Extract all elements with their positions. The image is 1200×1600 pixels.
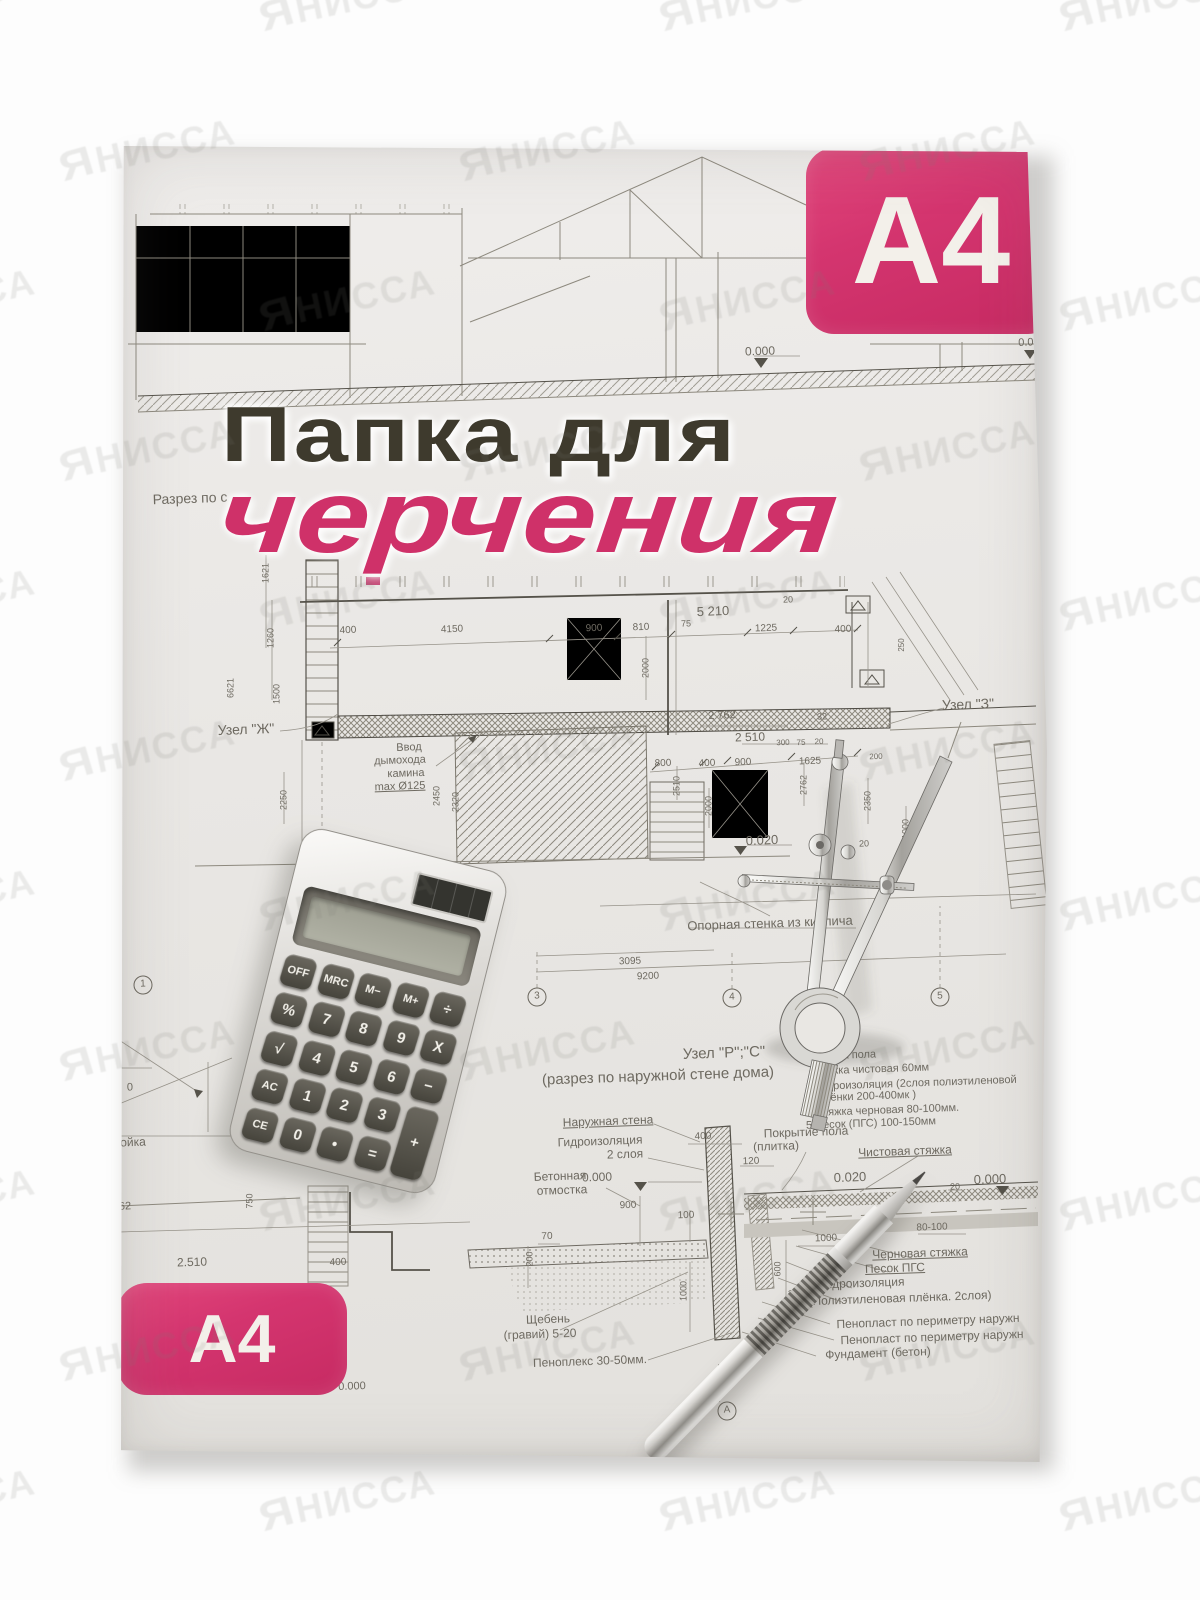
watermark-tile: ЯНИССА: [0, 857, 40, 940]
blueprint-label: Плитка пола: [812, 1049, 876, 1062]
nissa-logo-icon: Я: [53, 1336, 101, 1391]
nissa-logo-icon: Я: [253, 0, 301, 41]
calculator-key: •: [315, 1124, 355, 1163]
blueprint-label: 250: [898, 638, 906, 651]
nissa-logo-icon: Я: [1053, 286, 1101, 341]
calculator-key: 3: [362, 1095, 402, 1134]
blueprint-label: 750: [246, 1193, 255, 1208]
blueprint-labels: Разрез по с0.0000.01240041509008105 2107…: [121, 146, 1047, 1462]
blueprint-label: 9200: [637, 972, 660, 983]
watermark-text: НИССА: [1092, 1461, 1200, 1531]
blueprint-label: (Полиэтиленовая плёнка. 2слоя): [808, 1289, 991, 1307]
blueprint-label: 1225: [755, 624, 778, 635]
nissa-logo-icon: Я: [53, 136, 101, 191]
blueprint-label: 120: [742, 1157, 759, 1168]
nissa-logo-icon: Я: [1053, 1186, 1101, 1241]
nissa-logo-icon: Я: [53, 436, 101, 491]
blueprint-label: Покрытие пола: [763, 1125, 848, 1140]
calculator-key: −: [409, 1067, 449, 1106]
watermark-tile: ЯНИССА: [257, 0, 440, 40]
blueprint-label: max Ø125: [374, 781, 425, 794]
blueprint-label: Узел "Р";"С": [683, 1044, 766, 1062]
blueprint-label: Стяжка чистовая 60мм: [812, 1062, 929, 1077]
calculator-key: CE: [240, 1106, 280, 1145]
calculator-key: 8: [343, 1010, 383, 1049]
blueprint-label: Опорная стенка из кирпича: [687, 914, 853, 933]
watermark-text: НИССА: [1092, 0, 1200, 31]
blueprint-label: 600: [774, 1261, 783, 1276]
nissa-logo-icon: Я: [1053, 886, 1101, 941]
blueprint-label: 2.510: [177, 1255, 207, 1268]
watermark-tile: ЯНИССА: [1057, 557, 1200, 640]
blueprint-label: 80-100: [916, 1222, 947, 1233]
format-badge-bottom-label: А4: [189, 1300, 276, 1378]
blueprint-label: (гравий) 5-20: [503, 1327, 576, 1342]
watermark-tile: ЯНИССА: [1057, 0, 1200, 40]
blueprint-label: Песок ПГС: [865, 1261, 925, 1275]
blueprint-label: 0.000: [338, 1381, 366, 1393]
blueprint-label: (разрез по наружной стене дома): [542, 1064, 775, 1087]
nissa-logo-icon: Я: [653, 0, 701, 41]
watermark-text: НИССА: [1092, 1161, 1200, 1231]
blueprint-label: 20: [950, 1182, 960, 1191]
blueprint-label: 2 слоя: [607, 1147, 644, 1160]
blueprint-label: 1625: [799, 757, 822, 768]
watermark-tile: ЯНИССА: [1057, 857, 1200, 940]
blueprint-label: Щебень: [526, 1312, 570, 1326]
blueprint-label: 800: [654, 759, 671, 770]
watermark-tile: ЯНИССА: [0, 257, 40, 340]
blueprint-label: плёнки 200-400мк ): [818, 1090, 916, 1104]
blueprint-label: ойка: [120, 1136, 146, 1149]
blueprint-label: 75: [796, 739, 805, 747]
print-fleck: [366, 577, 380, 585]
blueprint-label: 2450: [433, 786, 442, 806]
calculator-key: 4: [296, 1039, 336, 1078]
blueprint-label: 0.020: [746, 833, 779, 847]
watermark-text: НИССА: [0, 0, 40, 31]
calculator-key: =: [352, 1134, 392, 1173]
blueprint-label: 400: [698, 759, 715, 770]
blueprint-label: 32: [817, 712, 827, 721]
blueprint-label: 400: [329, 1258, 346, 1269]
blueprint-label: 20: [859, 839, 869, 848]
blueprint-label: 75: [681, 619, 691, 628]
blueprint-label: Ввод: [396, 742, 422, 754]
blueprint-label: 70: [541, 1232, 552, 1242]
blueprint-label: 400: [834, 625, 851, 636]
blueprint-label: 20: [783, 595, 793, 604]
watermark-tile: ЯНИССА: [0, 1457, 40, 1540]
calculator-key: M+: [390, 981, 430, 1020]
blueprint-label: 5 210: [697, 604, 730, 618]
blueprint-label: Разрез по с: [152, 490, 227, 507]
blueprint-label: Узел "Ж": [217, 721, 274, 737]
calculator-key: 5: [334, 1048, 374, 1087]
blueprint-label: 1000: [902, 819, 911, 839]
calculator-key: 7: [306, 1000, 346, 1039]
watermark-text: НИССА: [0, 261, 40, 331]
blueprint-label: отмостка: [537, 1183, 588, 1197]
nissa-logo-icon: Я: [53, 736, 101, 791]
watermark-text: НИССА: [1092, 861, 1200, 931]
format-badge-bottom: А4: [117, 1283, 347, 1395]
blueprint-label: 4150: [441, 625, 464, 636]
nissa-logo-icon: Я: [1053, 586, 1101, 641]
blueprint-label: (плитка): [753, 1139, 799, 1153]
blueprint-label: 2762: [800, 775, 809, 795]
watermark-text: НИССА: [692, 0, 840, 31]
blueprint-label: 0.000: [974, 1172, 1007, 1186]
watermark-text: НИССА: [1092, 561, 1200, 631]
nissa-logo-icon: Я: [253, 1486, 301, 1541]
calculator-key: 6: [371, 1057, 411, 1096]
watermark-tile: ЯНИССА: [0, 557, 40, 640]
blueprint-label: камина: [387, 768, 424, 780]
watermark-text: НИССА: [292, 0, 440, 31]
blueprint-label: 2510: [673, 776, 682, 796]
blueprint-label: 1: [133, 975, 153, 995]
blueprint-label: 2350: [864, 791, 873, 811]
blueprint-label: Узел "З": [942, 696, 995, 712]
calculator-key: %: [269, 991, 309, 1030]
watermark-tile: ЯНИССА: [1057, 257, 1200, 340]
calculator-key: OFF: [278, 953, 318, 992]
blueprint-label: А: [717, 1401, 737, 1421]
blueprint-label: 1000: [680, 1281, 689, 1301]
blueprint-label: 4: [722, 988, 742, 1008]
blueprint-label: 2 510: [735, 730, 765, 743]
watermark-tile: ЯНИССА: [0, 1157, 40, 1240]
blueprint-label: 1260: [267, 628, 276, 648]
watermark-tile: ЯНИССА: [657, 0, 840, 40]
calculator-key: 2: [324, 1086, 364, 1125]
calculator-key: √: [259, 1029, 299, 1068]
nissa-logo-icon: Я: [1053, 1486, 1101, 1541]
blueprint-label: 200: [869, 753, 883, 761]
calculator-key: 9: [381, 1019, 421, 1058]
blueprint-label: 900: [619, 1201, 636, 1212]
blueprint-label: Чистовая стяжка: [858, 1143, 952, 1158]
blueprint-label: Пеноплекс 30-50мм.: [533, 1353, 647, 1369]
product-photo: Разрез по с0.0000.01240041509008105 2107…: [0, 0, 1200, 1600]
blueprint-label: 5: [930, 987, 950, 1007]
nissa-logo-icon: Я: [653, 1486, 701, 1541]
nissa-logo-icon: Я: [1053, 0, 1101, 41]
blueprint-label: 0.000: [582, 1170, 612, 1183]
calculator-keypad: OFFMRCM−M+÷%789X√456−AC123+CE0•=: [241, 953, 467, 1182]
blueprint-label: 400: [694, 1132, 711, 1143]
blueprint-label: Черновая стяжка: [872, 1245, 968, 1260]
blueprint-label: дымохода: [374, 755, 426, 768]
blueprint-label: 2 762: [708, 710, 736, 722]
watermark-tile: ЯНИССА: [1057, 1157, 1200, 1240]
blueprint-label: 100: [677, 1211, 694, 1222]
blueprint-label: 1000: [815, 1234, 838, 1245]
watermark-text: НИССА: [0, 861, 40, 931]
nissa-logo-icon: Я: [53, 1036, 101, 1091]
blueprint-label: 2000: [705, 796, 714, 816]
blueprint-label: 2320: [452, 792, 461, 812]
blueprint-label: 400: [339, 626, 356, 637]
calculator-key: M−: [353, 971, 393, 1010]
blueprint-label: 2000: [642, 658, 651, 678]
calculator-key: AC: [249, 1067, 289, 1106]
blueprint-label: 20: [814, 738, 823, 746]
watermark-text: НИССА: [1092, 261, 1200, 331]
product-title-line2: черчения: [214, 458, 843, 577]
blueprint-label: Пенопласт по периметру наружн: [840, 1328, 1023, 1346]
calculator-key: ÷: [428, 990, 468, 1029]
blueprint-label: 3: [527, 987, 547, 1007]
blueprint-label: 6621: [227, 678, 236, 698]
watermark-text: НИССА: [0, 1161, 40, 1231]
watermark-tile: ЯНИССА: [0, 0, 40, 40]
format-badge-top: А4: [806, 148, 1056, 334]
blueprint-label: 900: [734, 758, 751, 769]
blueprint-label: Фундамент (бетон): [825, 1345, 931, 1361]
blueprint-label: 0.020: [834, 1170, 867, 1184]
blueprint-label: 3095: [619, 957, 642, 968]
blueprint-label: Наружная стена: [563, 1113, 654, 1128]
blueprint-label: 200: [526, 1251, 535, 1266]
calculator-key: MRC: [316, 962, 356, 1001]
pen-tip: [912, 1170, 927, 1185]
blueprint-label: 900: [585, 624, 602, 635]
folder-cover: Разрез по с0.0000.01240041509008105 2107…: [121, 146, 1047, 1462]
calculator-key: 1: [287, 1077, 327, 1116]
blueprint-label: 810: [632, 623, 649, 634]
blueprint-label: 0.000: [745, 344, 775, 357]
blueprint-label: 62: [119, 1201, 132, 1212]
blueprint-label: 300: [776, 739, 790, 747]
format-badge-top-label: А4: [852, 170, 1011, 312]
calculator-key: 0: [277, 1115, 317, 1154]
watermark-tile: ЯНИССА: [1057, 1457, 1200, 1540]
watermark-text: НИССА: [0, 561, 40, 631]
watermark-text: НИССА: [0, 1461, 40, 1531]
blueprint-label: 1500: [273, 684, 282, 704]
blueprint-label: 2250: [280, 790, 289, 810]
blueprint-label: 0: [127, 1082, 134, 1093]
blueprint-label: Бетонная: [533, 1169, 586, 1183]
calculator-key: X: [418, 1028, 458, 1067]
